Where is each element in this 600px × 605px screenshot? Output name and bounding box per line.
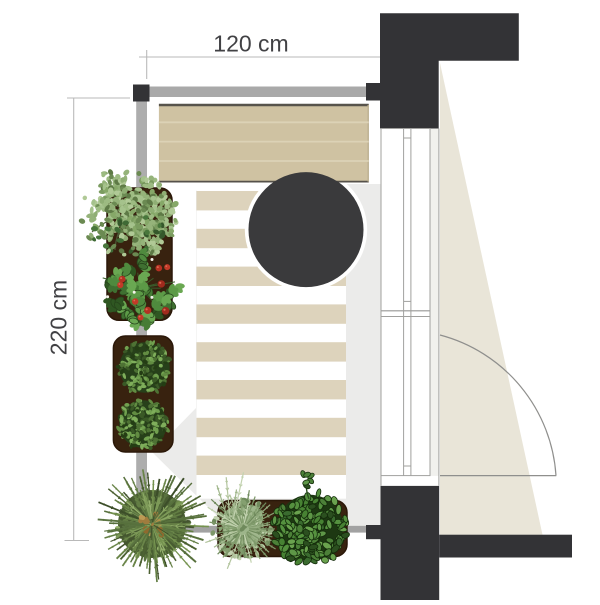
svg-text:120 cm: 120 cm [213,31,288,57]
svg-text:220 cm: 220 cm [46,280,72,355]
